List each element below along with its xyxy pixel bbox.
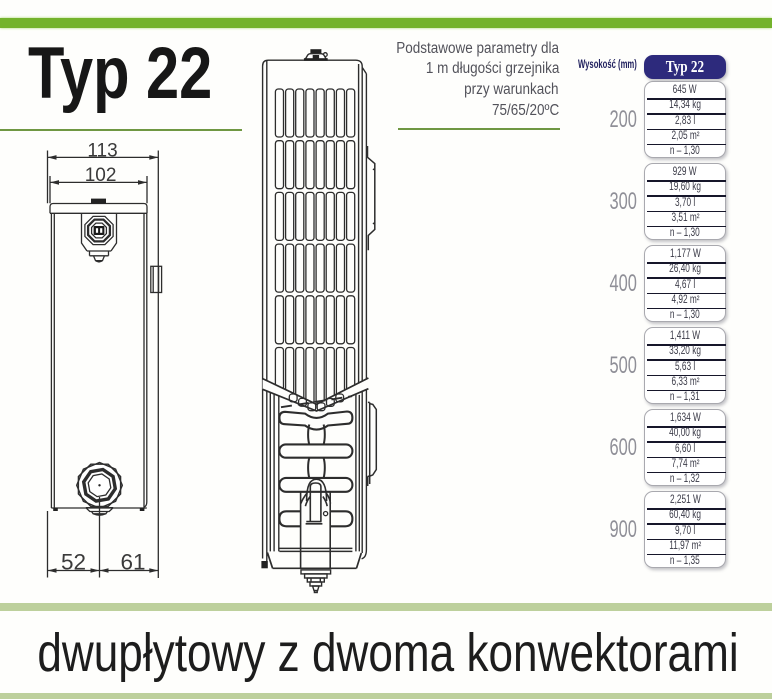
svg-text:113: 113 xyxy=(87,140,117,161)
